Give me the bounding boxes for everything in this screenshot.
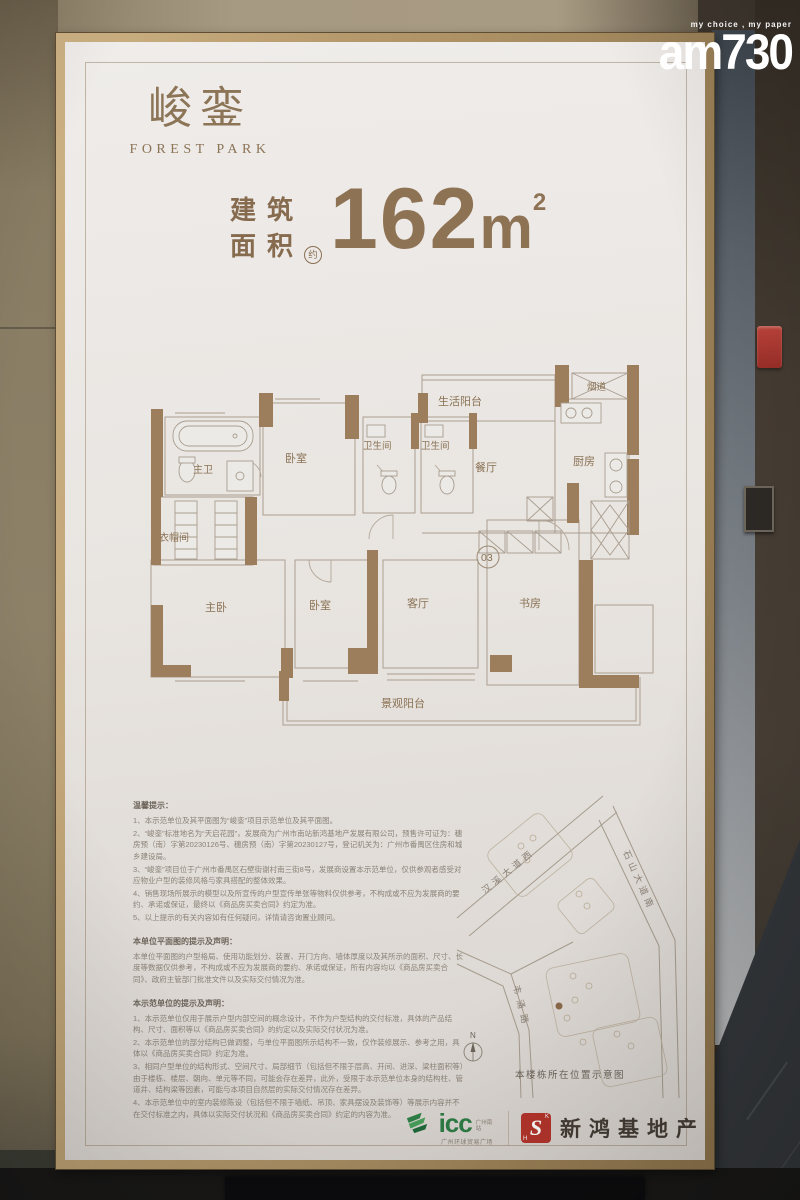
area-value: 162m2 (330, 170, 546, 269)
room-label-kitchen: 厨房 (573, 455, 595, 468)
room-label-master-bedroom: 主卧 (205, 601, 227, 614)
am730-watermark: my choice , my paper am730 (612, 20, 792, 73)
map-caption: 本楼栋所在位置示意图 (515, 1069, 625, 1081)
building-marker (556, 1003, 563, 1010)
notice-section: 本示范单位的提示及声明： 1、本示范单位仅用于展示户型内部空间的概念设计，不作为… (133, 998, 465, 1121)
logo-divider (508, 1111, 509, 1145)
area-figure: 建筑 面积 约 162m2 (230, 186, 660, 304)
unit-number: 03 (481, 552, 493, 564)
notice-section: 本单位平面图的提示及声明： 本单位平面图的户型格局、使用功能划分、装置、开门方向… (133, 936, 465, 986)
room-label-master-bath: 主卫 (193, 464, 213, 476)
compass-n: N (470, 1031, 476, 1040)
room-label-living: 客厅 (407, 596, 429, 610)
shk-badge-icon: S K H (521, 1113, 551, 1143)
floorplan: 03 生活阳台 烟道 厨房 餐厅 卫生间 卫生间 卧室 主卫 衣帽间 主卧 卧室… (135, 365, 675, 755)
wall-left (0, 0, 58, 1200)
compass-icon: N (464, 1031, 482, 1061)
icc-tagline: 广州南站 (476, 1120, 496, 1134)
icc-subtitle: 广州环球贸易广场 (441, 1137, 493, 1146)
wall-top (58, 0, 698, 36)
notice-item: 3、“峻銮”项目位于广州市番禺区石壁街谢村南三街8号，发展商设置本示范单位，仅供… (133, 864, 465, 887)
notice-item: 4、销售现场所展示的模型以及所宣传的户型宣传单张等物料仅供参考，不构成或不应为发… (133, 888, 465, 911)
notice-item: 2、“峻銮”标准地名为“天启花园”，发展商为广州市南站新鸿基地产发展有限公司，预… (133, 828, 465, 863)
wall-seam (0, 327, 58, 329)
notice-section: 温馨提示： 1、本示范单位及其平面图为“峻銮”项目示范单位及其平面图。 2、“峻… (133, 800, 465, 924)
brand-logo-en: FOREST PARK (105, 142, 295, 158)
room-label-bath-1: 卫生间 (363, 440, 392, 452)
shk-name: 新鸿基地产 (560, 1113, 705, 1143)
road-label-weichong: 韦涌路 (511, 984, 533, 1030)
wall-plaque (744, 486, 774, 532)
brand-logo-cn: 峻銮 (105, 72, 295, 136)
icc-logo: icc 广州南站 广州环球贸易广场 (405, 1110, 496, 1146)
notice-title: 本示范单位的提示及声明： (133, 998, 465, 1009)
room-label-bedroom-bottom: 卧室 (309, 598, 331, 612)
poster-stand-base (225, 1178, 645, 1200)
area-label-1: 建筑 (230, 190, 304, 227)
poster: 峻銮 FOREST PARK 建筑 面积 约 162m2 (65, 42, 705, 1160)
room-label-bath-2: 卫生间 (421, 440, 450, 452)
area-number: 162 (330, 171, 480, 267)
map-buildings (518, 835, 634, 1049)
shk-logo: S K H 新鸿基地产 (521, 1113, 705, 1143)
am730-logo: am730 (612, 29, 792, 76)
area-unit: m (480, 194, 533, 261)
room-label-study: 书房 (519, 597, 541, 610)
photo-scene: 峻銮 FOREST PARK 建筑 面积 约 162m2 (0, 0, 800, 1200)
notice-title: 温馨提示： (133, 800, 465, 811)
location-map: 汉溪大道西 石山大道南 韦涌路 N 本楼栋所在位置示意图 (455, 790, 685, 1100)
road-label-shishan: 石山大道南 (621, 848, 657, 912)
notice-item: 2、本示范单位的部分结构已做调整，与单位平面图所示结构不一致，仅作装修展示、参考… (133, 1037, 465, 1060)
icc-flag-icon (405, 1110, 435, 1134)
notice-title: 本单位平面图的提示及声明： (133, 936, 465, 947)
icc-text: icc (439, 1113, 472, 1134)
approx-badge: 约 (304, 246, 322, 264)
notice-item: 本单位平面图的户型格局、使用功能划分、装置、开门方向、墙体厚度以及其所示的面积、… (133, 951, 465, 986)
notice-item: 1、本示范单位及其平面图为“峻銮”项目示范单位及其平面图。 (133, 815, 465, 827)
shk-badge-k: K (545, 1114, 549, 1120)
room-label-dining: 餐厅 (475, 460, 497, 474)
room-label-cloakroom: 衣帽间 (159, 531, 189, 544)
shk-badge-h: H (523, 1136, 527, 1142)
fire-alarm-box (757, 326, 782, 368)
shk-badge-s: S (530, 1115, 542, 1140)
notice-item: 5、以上提示的有关内容如有任何疑问，详情请咨询置业顾问。 (133, 912, 465, 924)
notice-item: 1、本示范单位仅用于展示户型内部空间的概念设计，不作为户型结构的交付标准，具体的… (133, 1013, 465, 1036)
room-label-service-balcony: 生活阳台 (438, 394, 482, 408)
disclaimer-block: 温馨提示： 1、本示范单位及其平面图为“峻銮”项目示范单位及其平面图。 2、“峻… (133, 800, 465, 1132)
area-label-2: 面积 (230, 226, 304, 263)
wall-right-lit (712, 30, 757, 1045)
room-label-bedroom-top: 卧室 (285, 451, 307, 465)
marble-streak (746, 1062, 788, 1120)
brand-logo: 峻銮 FOREST PARK (105, 72, 295, 158)
notice-item: 3、相同户型单位的结构形式、空间尺寸、局部细节（包括但不限于层高、开间、进深、梁… (133, 1061, 465, 1096)
footer-logos: icc 广州南站 广州环球贸易广场 S K H 新鸿基地产 (405, 1105, 705, 1151)
room-label-flue: 烟道 (587, 381, 607, 393)
area-power: 2 (533, 189, 546, 216)
room-label-view-balcony: 景观阳台 (381, 696, 425, 710)
poster-frame: 峻銮 FOREST PARK 建筑 面积 约 162m2 (56, 33, 714, 1169)
